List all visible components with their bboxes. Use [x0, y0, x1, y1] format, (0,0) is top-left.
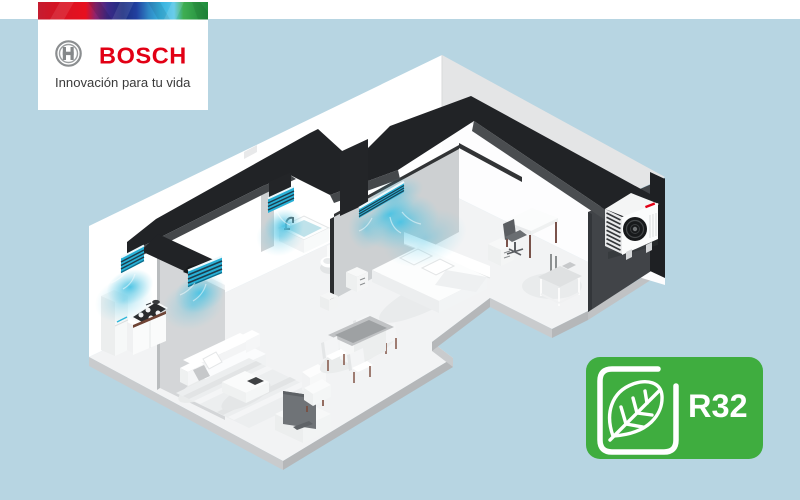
svg-text:BOSCH: BOSCH — [99, 43, 187, 69]
svg-text:R32: R32 — [688, 388, 748, 424]
svg-text:Innovación para tu vida: Innovación para tu vida — [55, 75, 191, 90]
